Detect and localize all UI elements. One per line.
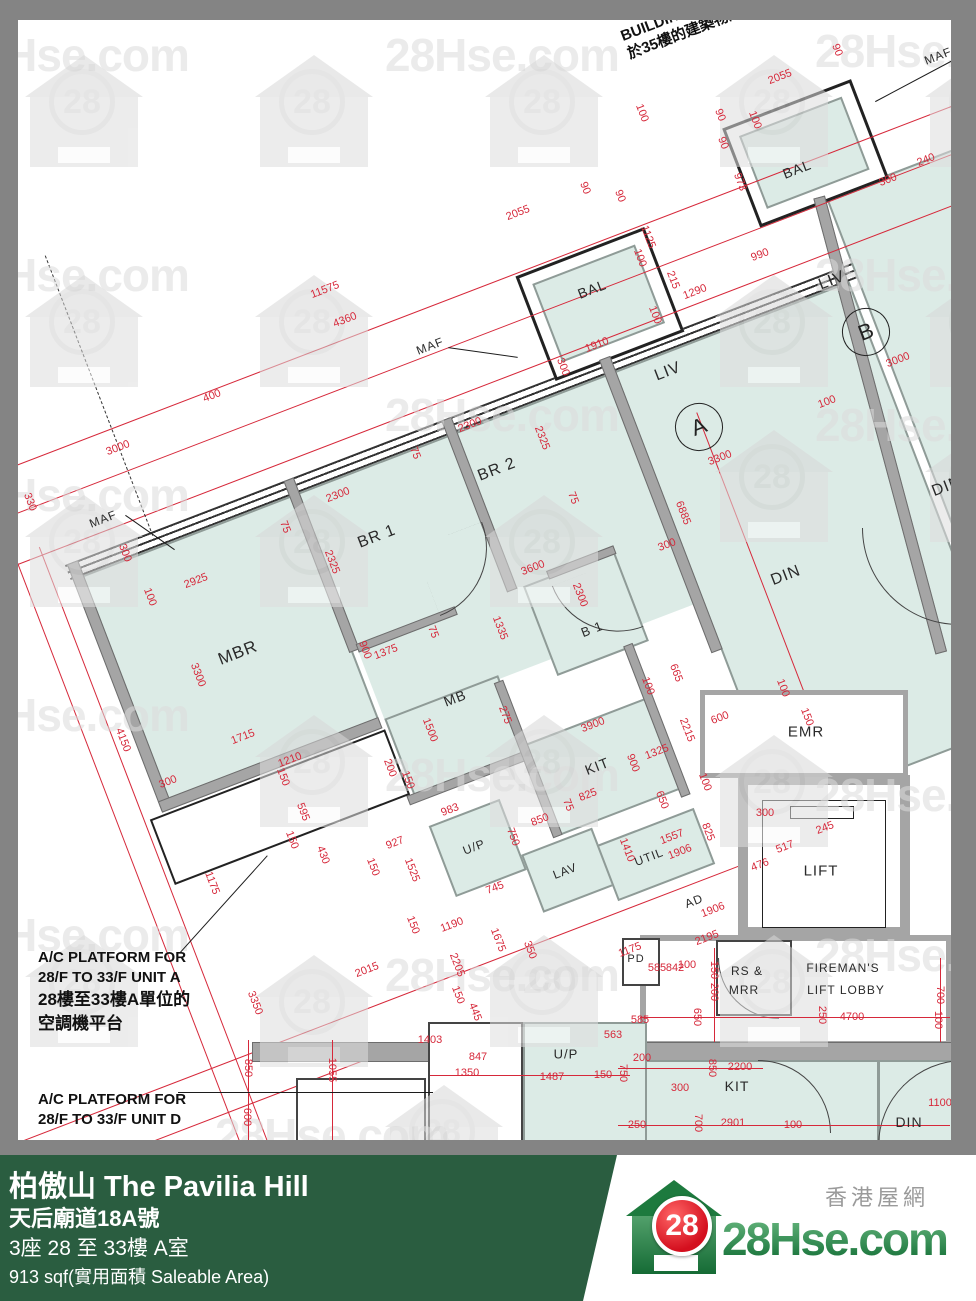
dimension-value: 2200: [728, 1061, 752, 1073]
dimension-value: 700: [934, 986, 946, 1004]
room-label-kit: KIT: [725, 1078, 750, 1094]
dimension-line: [332, 1040, 333, 1140]
building-line-dashed: [45, 255, 153, 535]
ac-a-line4: 空調機平台: [38, 1012, 190, 1036]
frame-left: [0, 0, 18, 1153]
dimension-value: 750: [617, 1064, 629, 1082]
ac-a-line1: A/C PLATFORM FOR: [38, 948, 190, 968]
dimension-value: 1055: [326, 1058, 338, 1082]
ac-a-line2: 28/F TO 33/F UNIT A: [38, 968, 190, 988]
dimension-value: 100: [932, 1011, 944, 1029]
dimension-value: 300: [671, 1082, 689, 1094]
room-label-rs-: RS &: [731, 964, 763, 978]
dimension-value: 2901: [721, 1117, 745, 1129]
watermark-house-icon: 28: [485, 55, 603, 167]
dimension-value: 1350: [455, 1067, 479, 1079]
dimension-value: 250: [628, 1119, 646, 1131]
house-icon: 28: [626, 1180, 722, 1278]
floorplan-page: 28Hse.com28Hse.com28Hse.com28Hse.com28Hs…: [0, 0, 976, 1301]
dimension-value: 1403: [418, 1034, 442, 1046]
dimension-value: 200: [633, 1052, 651, 1064]
badge-28-icon: 28: [652, 1196, 712, 1256]
watermark-text: 28Hse.com: [385, 28, 619, 82]
estate-title: 柏傲山 The Pavilia Hill: [9, 1163, 309, 1205]
room-up-bottom: [523, 1022, 647, 1151]
dimension-value: 100: [678, 959, 696, 971]
house-door: [654, 1255, 698, 1271]
dimension-value: 585: [648, 962, 666, 974]
dimension-line: [640, 1017, 950, 1018]
dimension-value: 850: [242, 1059, 254, 1077]
28hse-logo[interactable]: 28 28Hse.com 香港屋網: [622, 1178, 976, 1288]
leader-line-ac-d: [178, 1092, 433, 1093]
dimension-value: 150: [594, 1069, 612, 1081]
frame-top: [0, 0, 976, 20]
fireman-lift-lobby: [640, 935, 952, 1047]
watermark-text: 28Hse.com: [0, 28, 189, 82]
ac-platform-unit-d: [428, 1022, 523, 1147]
room-label-din: DIN: [895, 1114, 922, 1130]
dimension-value: 100: [633, 102, 651, 123]
ac-note-unit-d: A/C PLATFORM FOR 28/F TO 33/F UNIT D: [38, 1090, 186, 1130]
dimension-value: 700: [692, 1114, 704, 1132]
dimension-value: 150: [708, 961, 720, 979]
dimension-value: 850: [706, 1059, 718, 1077]
dimension-value: 4700: [840, 1011, 864, 1023]
dimension-value: 200: [708, 983, 720, 1001]
estate-address: 天后廟道18A號: [9, 1201, 159, 1233]
room-label-u-p: U/P: [554, 1047, 579, 1062]
frame-bottom: [0, 1140, 976, 1155]
watermark-house-icon: 28: [255, 55, 373, 167]
dimension-value: 1487: [540, 1071, 564, 1083]
room-label-emr: EMR: [788, 724, 824, 741]
room-label-pd: PD: [627, 953, 644, 965]
ac-note-unit-a: A/C PLATFORM FOR 28/F TO 33/F UNIT A 28樓…: [38, 948, 190, 1036]
dimension-value: 2055: [766, 67, 793, 87]
ac-d-line2: 28/F TO 33/F UNIT D: [38, 1110, 186, 1130]
dimension-value: 585: [631, 1014, 649, 1026]
dimension-value: 847: [469, 1051, 487, 1063]
dimension-value: 563: [604, 1029, 622, 1041]
dimension-value: 1100: [928, 1097, 952, 1109]
frame-right: [951, 0, 976, 1153]
plan-canvas: 28Hse.com28Hse.com28Hse.com28Hse.com28Hs…: [0, 0, 976, 1153]
ac-platform-unit-d-2: [296, 1078, 426, 1147]
watermark-house-icon: 28: [25, 55, 143, 167]
dimension-value: 90: [712, 107, 728, 123]
dimension-value: 90: [829, 42, 845, 58]
room-label-lift: LIFT: [804, 863, 839, 880]
logo-tagline: 香港屋網: [825, 1180, 929, 1212]
watermark-text: 28Hse.com: [0, 248, 189, 302]
room-label-fireman-s: FIREMAN'S: [806, 961, 879, 975]
ac-a-line3: 28樓至33樓A單位的: [38, 988, 190, 1012]
estate-saleable-area: 913 sqf(實用面積 Saleable Area): [9, 1263, 269, 1289]
room-label-mrr: MRR: [729, 983, 759, 997]
dimension-value: 600: [241, 1108, 253, 1126]
dimension-value: 650: [691, 1008, 703, 1026]
dimension-value: 250: [816, 1006, 828, 1024]
dimension-value: 300: [756, 807, 774, 819]
lift-door: [790, 806, 854, 819]
logo-site-name: 28Hse.com: [722, 1212, 947, 1266]
room-label-lift-lobby: LIFT LOBBY: [807, 983, 885, 997]
dimension-value: 100: [784, 1119, 802, 1131]
estate-block-floor-unit: 3座 28 至 33樓 A室: [9, 1232, 189, 1262]
ac-d-line1: A/C PLATFORM FOR: [38, 1090, 186, 1110]
